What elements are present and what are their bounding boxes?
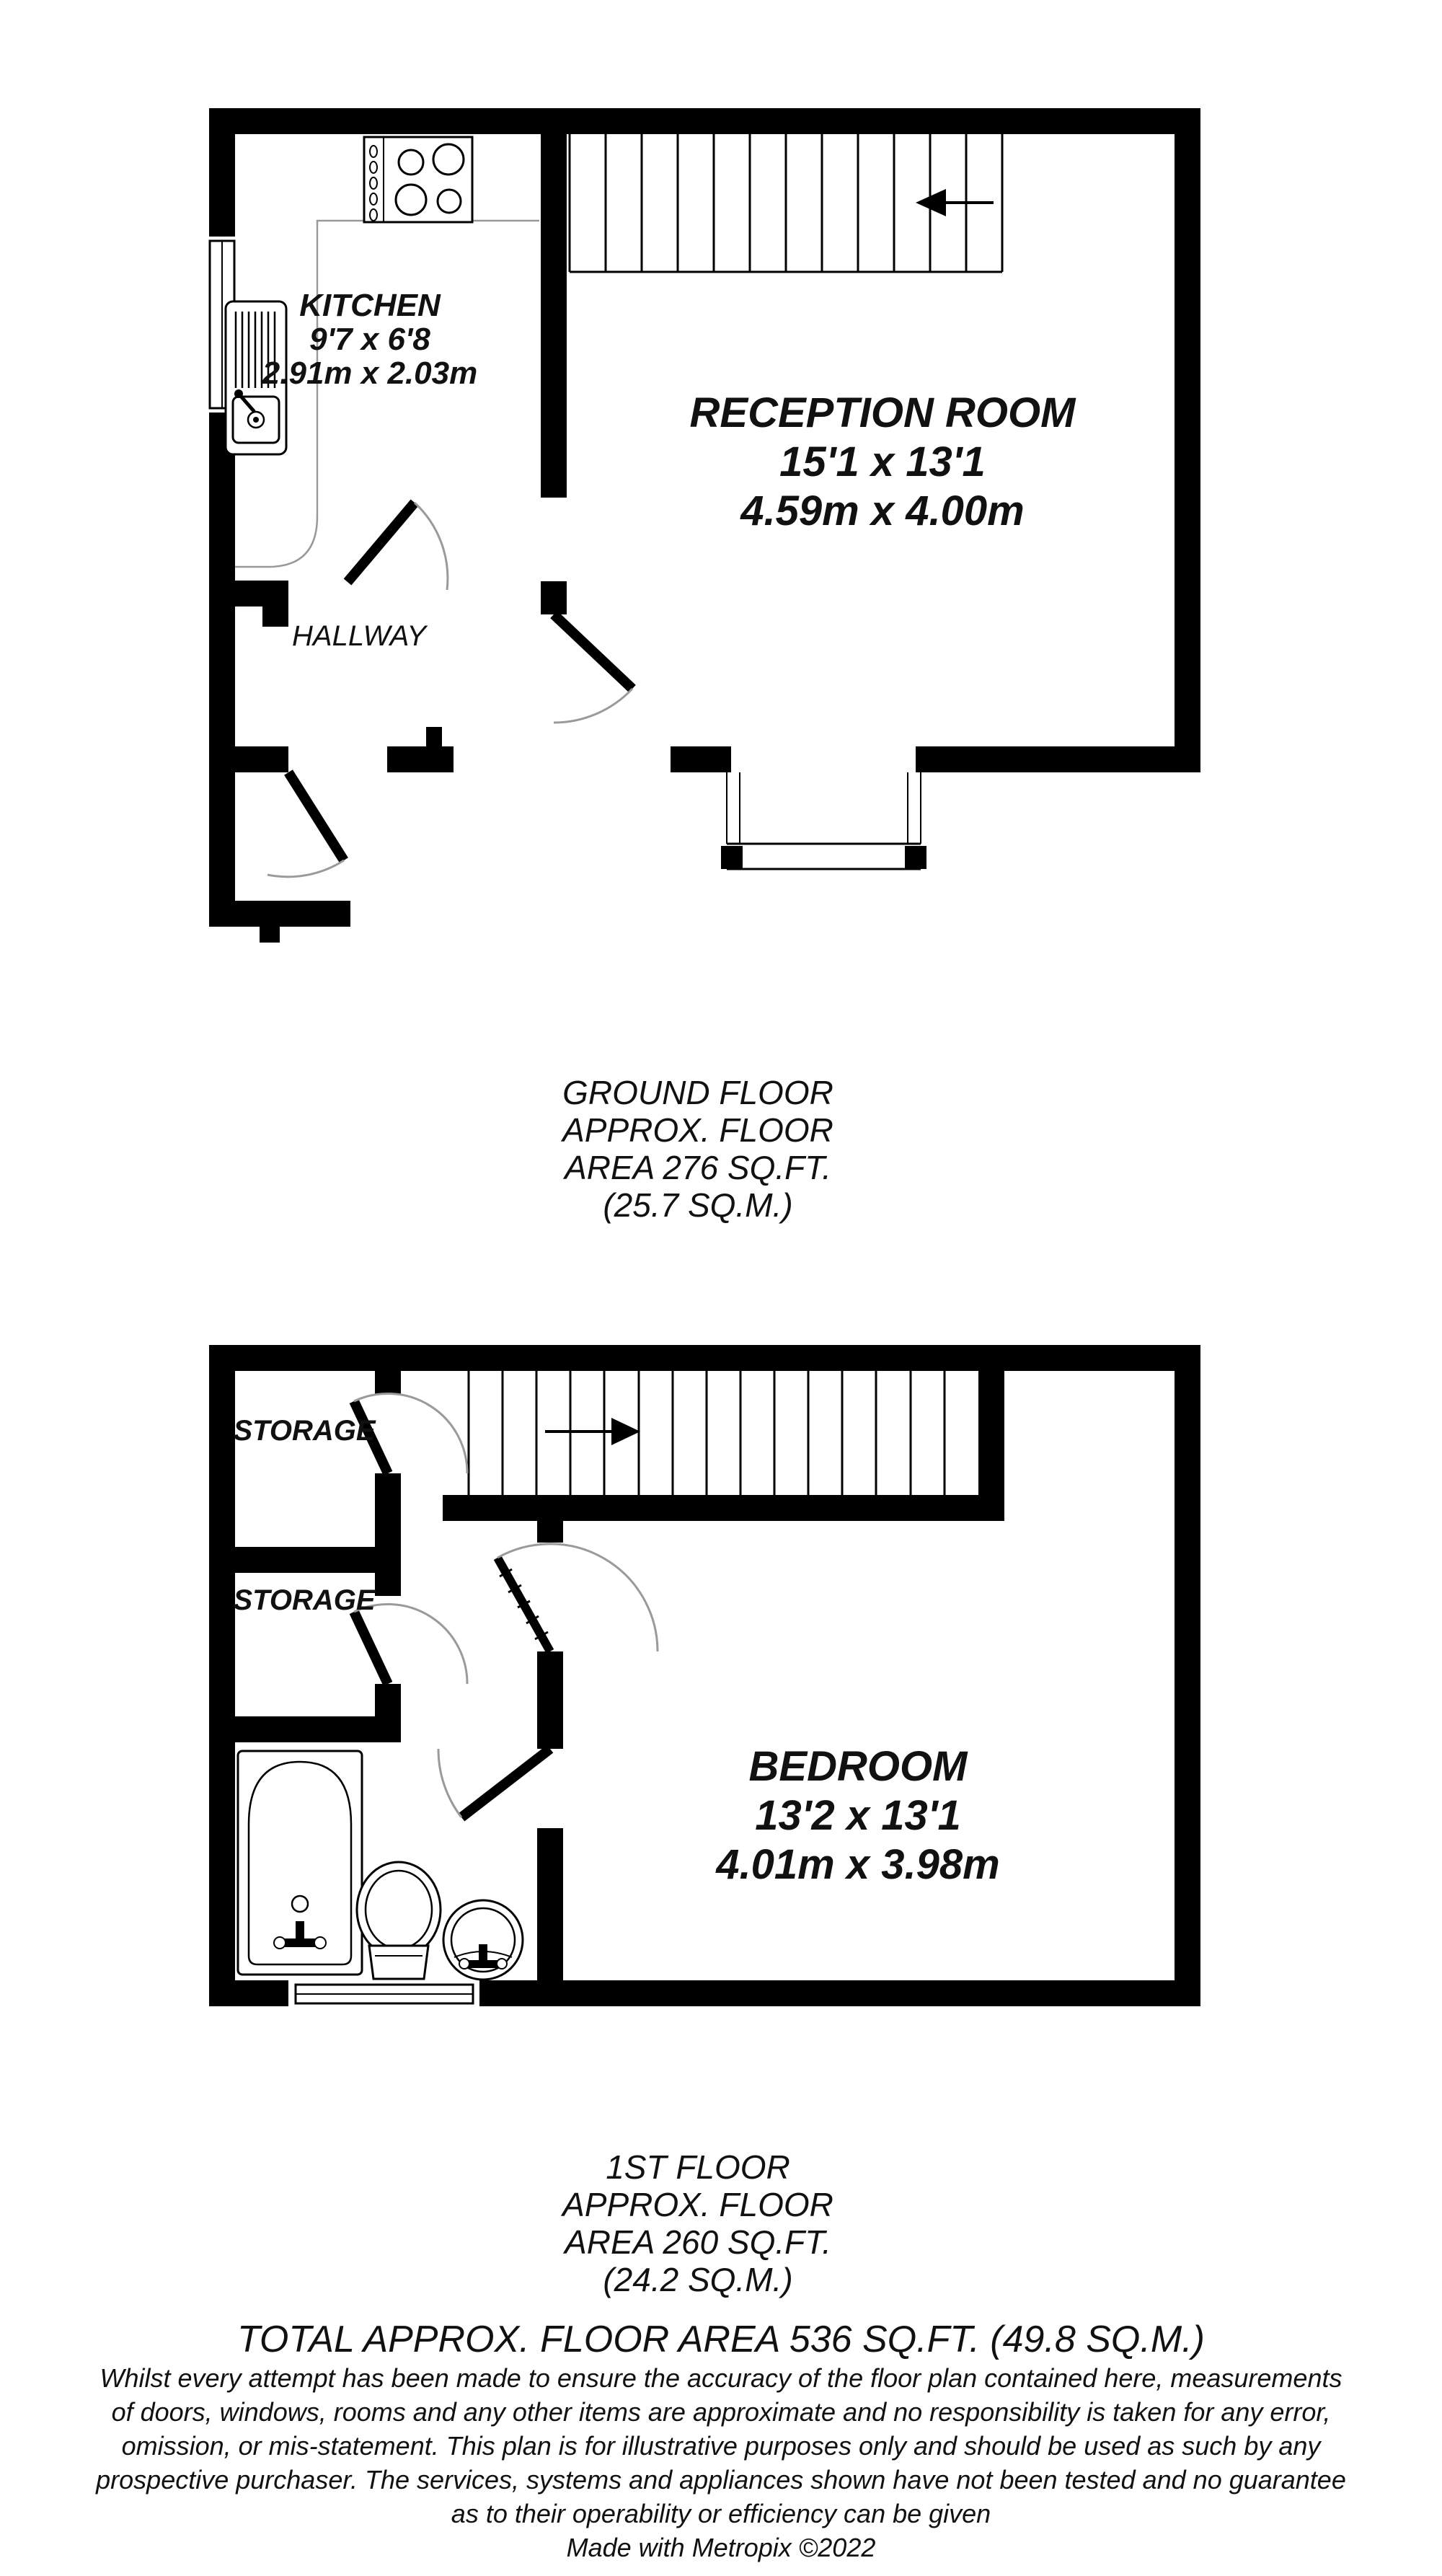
door-leaf (554, 614, 632, 689)
wall-segment (537, 1651, 563, 1716)
sink-drain-dot (253, 417, 259, 423)
wall-segment (541, 581, 567, 614)
wall-segment (978, 1371, 1004, 1495)
disclaimer-line: of doors, windows, rooms and any other i… (96, 2395, 1346, 2429)
caption-line: GROUND FLOOR (562, 1074, 833, 1111)
wall-segment (209, 1980, 292, 2006)
window-icon (288, 1977, 479, 2009)
toilet-bowl-outer (357, 1862, 441, 1957)
front-door (267, 772, 344, 877)
wall-segment (260, 927, 280, 943)
bay-jambs (727, 772, 921, 844)
door-swing-arc (554, 689, 632, 723)
toilet-icon (357, 1862, 441, 1979)
wall-segment (387, 746, 454, 772)
wall-segment (1175, 108, 1200, 772)
arrow-head (611, 1418, 640, 1445)
reception-dims-metric: 4.59m x 4.00m (690, 487, 1076, 536)
door-bathroom (438, 1749, 550, 1817)
reception-label: RECEPTION ROOM 15'1 x 13'1 4.59m x 4.00m (690, 389, 1076, 536)
disclaimer-line: Whilst every attempt has been made to en… (96, 2361, 1346, 2395)
stairs-first (469, 1371, 945, 1495)
bedroom-dims-imperial: 13'2 x 13'1 (716, 1791, 999, 1840)
caption-line: 1ST FLOOR (562, 2148, 833, 2186)
door-leaf (354, 1612, 388, 1684)
wall-segment (1175, 1345, 1200, 2006)
metropix-credit: Made with Metropix ©2022 (96, 2531, 1346, 2564)
stove-icon (364, 137, 472, 222)
caption-line: AREA 276 SQ.FT. (562, 1149, 833, 1186)
wall-segment (235, 746, 288, 772)
reception-dims-imperial: 15'1 x 13'1 (690, 438, 1076, 487)
door-swing-arc (415, 503, 448, 590)
wall-segment (443, 1495, 1004, 1521)
wall-segment (476, 1980, 1200, 2006)
bedroom-label: BEDROOM 13'2 x 13'1 4.01m x 3.98m (716, 1742, 999, 1889)
kitchen-dims-imperial: 9'7 x 6'8 (262, 322, 477, 356)
wall-segment (209, 1716, 401, 1742)
wall-segment (209, 1345, 235, 2006)
caption-line: (25.7 SQ.M.) (562, 1186, 833, 1224)
storage-bottom-label: STORAGE (233, 1584, 375, 1617)
total-area-line: TOTAL APPROX. FLOOR AREA 536 SQ.FT. (49.… (237, 2318, 1205, 2361)
door-kitchen-hallway (348, 503, 448, 590)
caption-line: AREA 260 SQ.FT. (562, 2223, 833, 2261)
wall-segment (209, 1345, 1200, 1371)
wall-segment (537, 1828, 563, 2006)
wall-segment (209, 901, 350, 927)
disclaimer-line: as to their operability or efficiency ca… (96, 2497, 1346, 2531)
wall-segment (209, 108, 1200, 134)
kitchen-label: KITCHEN 9'7 x 6'8 2.91m x 2.03m (262, 288, 477, 390)
bay-pier (721, 846, 743, 869)
storage-top-label: STORAGE (233, 1415, 375, 1447)
door-hallway-reception (554, 614, 632, 723)
bay-window-icon (721, 772, 926, 869)
stair-direction-arrow-icon (916, 189, 994, 216)
caption-line: APPROX. FLOOR (562, 2186, 833, 2223)
wall-segment (209, 581, 288, 606)
ground-floor-caption: GROUND FLOOR APPROX. FLOOR AREA 276 SQ.F… (562, 1074, 833, 1224)
bathtub-icon (238, 1751, 362, 1975)
disclaimer-block: Whilst every attempt has been made to en… (96, 2361, 1346, 2564)
wall-segment (209, 1547, 401, 1573)
wall-segment (375, 1684, 401, 1742)
wall-segment (375, 1473, 401, 1573)
first-floor-caption: 1ST FLOOR APPROX. FLOOR AREA 260 SQ.FT. … (562, 2148, 833, 2298)
caption-line: APPROX. FLOOR (562, 1111, 833, 1149)
bay-glass (727, 845, 921, 868)
basin-tap-knob (497, 1959, 507, 1969)
door-leaf (348, 503, 415, 582)
door-leaf (288, 772, 344, 860)
wall-segment (375, 1573, 401, 1596)
kitchen-dims-metric: 2.91m x 2.03m (262, 356, 477, 390)
reception-name: RECEPTION ROOM (690, 389, 1076, 438)
wall-segment (541, 134, 567, 498)
door-bedroom (497, 1544, 658, 1651)
basin-tap-knob (459, 1959, 469, 1969)
bath-tap-knob (314, 1937, 326, 1949)
wall-segment (209, 108, 235, 927)
bay-pier (905, 846, 926, 869)
wall-segment (671, 746, 731, 772)
kitchen-name: KITCHEN (262, 288, 477, 322)
bedroom-dims-metric: 4.01m x 3.98m (716, 1840, 999, 1889)
wall-segment (426, 727, 442, 746)
disclaimer-line: omission, or mis-statement. This plan is… (96, 2429, 1346, 2463)
hallway-label: HALLWAY (292, 620, 426, 653)
bedroom-name: BEDROOM (716, 1742, 999, 1791)
door-swing-arc (267, 860, 344, 877)
door-swing-arc (438, 1749, 461, 1817)
door-leaf (461, 1749, 550, 1817)
basin-icon (443, 1900, 523, 1980)
wall-segment (262, 606, 288, 627)
floorplan-page: KITCHEN 9'7 x 6'8 2.91m x 2.03m RECEPTIO… (0, 0, 1442, 2576)
wall-segment (537, 1716, 563, 1749)
wall-segment (916, 746, 1200, 772)
bath-tap-knob (274, 1937, 286, 1949)
wall-segment (375, 1371, 401, 1394)
caption-line: (24.2 SQ.M.) (562, 2261, 833, 2298)
disclaimer-line: prospective purchaser. The services, sys… (96, 2463, 1346, 2497)
toilet-cistern (369, 1946, 428, 1979)
stair-direction-arrow-icon (545, 1418, 640, 1445)
wall-segment (537, 1521, 563, 1543)
